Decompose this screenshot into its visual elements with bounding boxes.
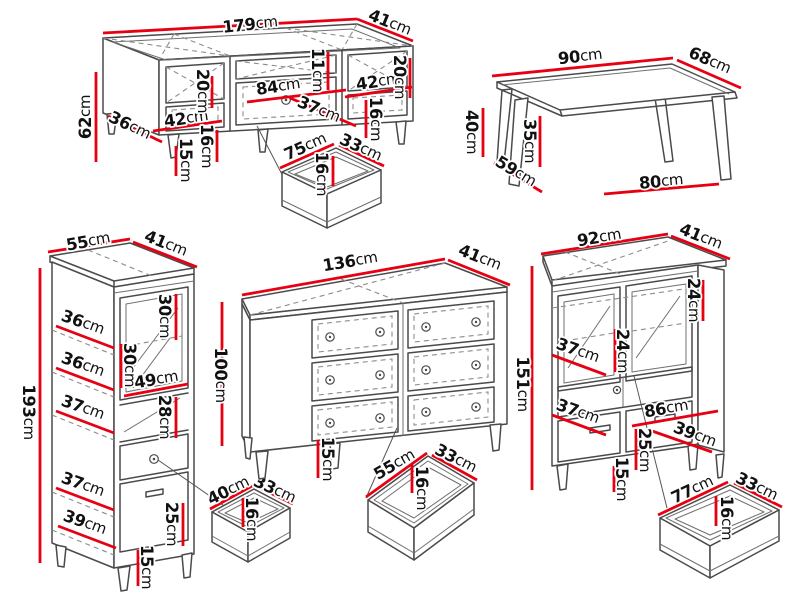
dimension-label: 16cm xyxy=(718,496,737,540)
display-cabinet-drawing: 55cm41cm193cm36cm30cm30cm36cm49cm28cm37c… xyxy=(20,226,231,591)
dimension-label: 25cm xyxy=(163,502,182,546)
dimension-label: 136cm xyxy=(321,247,379,274)
highboard-drawing: 92cm41cm151cm24cm24cm37cm37cm86cm39cm25c… xyxy=(514,219,731,508)
dimension-label: 41cm xyxy=(456,240,504,274)
dimension-label: 11cm xyxy=(309,48,328,92)
dimension-label: 15cm xyxy=(613,457,632,501)
dimension-label: 24cm xyxy=(685,278,704,322)
diagram-canvas: 179cm41cm62cm36cm42cm20cm16cm15cm84cm11c… xyxy=(0,0,800,600)
coffee-table-drawing: 90cm68cm40cm59cm35cm80cm xyxy=(463,42,742,194)
dimension-label: 25cm xyxy=(636,428,655,472)
dimension-label: 68cm xyxy=(686,42,734,77)
dimension-label: 35cm xyxy=(521,119,540,163)
dimension-label: 15cm xyxy=(177,138,196,182)
highboard-drawer-drawing: 77cm33cm16cm xyxy=(658,468,782,578)
dimension-label: 16cm xyxy=(413,466,432,510)
dresser-drawer-drawing: 55cm33cm16cm xyxy=(366,439,480,560)
dimension-label: 16cm xyxy=(367,97,386,141)
tv-stand-drawer-drawing: 75cm33cm16cm xyxy=(280,128,385,228)
dimension-label: 90cm xyxy=(557,44,603,68)
dimension-label: 30cm xyxy=(156,294,175,338)
dimension-label: 62cm xyxy=(76,95,95,139)
dimension-label: 40cm xyxy=(463,110,482,154)
tv-stand-drawing: 179cm41cm62cm36cm42cm20cm16cm15cm84cm11c… xyxy=(76,5,415,186)
dimension-label: 28cm xyxy=(156,395,175,439)
dimension-label: 100cm xyxy=(212,347,231,402)
furniture-dimensions-diagram: 179cm41cm62cm36cm42cm20cm16cm15cm84cm11c… xyxy=(0,0,800,600)
dimension-label: 20cm xyxy=(194,69,213,113)
display-cabinet-drawer-drawing: 40cm33cm16cm xyxy=(204,471,299,562)
dimension-label: 15cm xyxy=(138,545,157,589)
dimension-label: 151cm xyxy=(514,356,533,411)
dimension-label: 20cm xyxy=(391,55,410,99)
dimension-label: 16cm xyxy=(313,152,332,196)
dimension-label: 16cm xyxy=(243,497,262,541)
dimension-label: 16cm xyxy=(198,124,217,168)
dimension-label: 15cm xyxy=(319,437,338,481)
dimension-label: 24cm xyxy=(614,329,633,373)
dimension-label: 193cm xyxy=(20,384,39,439)
